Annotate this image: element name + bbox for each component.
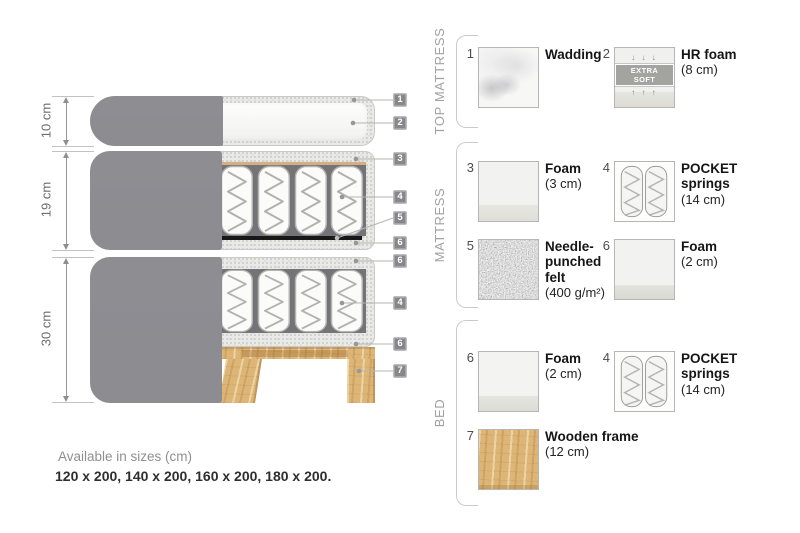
foam-swatch [478, 351, 539, 412]
item-number: 4 [592, 351, 610, 365]
compress-up-arrows-icon: ↑ ↑ ↑ [615, 89, 674, 97]
felt-texture [479, 240, 538, 299]
layer-tag-1: 1 [393, 93, 407, 107]
legend-section-title-mattress: MATTRESS [432, 160, 450, 290]
pocket-springs-icon [615, 352, 674, 411]
legend-item-bed-foam: 6 Foam (2 cm) [456, 351, 582, 412]
layer-tag-6b: 6 [393, 254, 407, 268]
item-name: HR foam [681, 47, 737, 62]
layer-tag-6: 6 [393, 236, 407, 250]
item-number: 2 [592, 47, 610, 61]
layer-tag-5: 5 [393, 211, 407, 225]
sizes-note-values: 120 x 200, 140 x 200, 160 x 200, 180 x 2… [55, 468, 331, 484]
wadding-swatch [478, 47, 539, 108]
legend-section-title-bed: BED [432, 348, 450, 478]
compress-down-arrows-icon: ↓ ↓ ↓ [615, 54, 674, 62]
item-name: Foam [545, 161, 582, 176]
pocket-springs-swatch [614, 161, 675, 222]
legend-section-title-top-mattress: TOP MATTRESS [432, 16, 450, 146]
layer-tag-7: 7 [393, 364, 407, 378]
legend-item-bed-pocket-springs: 4 POCKET springs (14 cm) [592, 351, 757, 412]
sizes-note-title: Available in sizes (cm) [58, 449, 192, 464]
item-number: 6 [592, 239, 610, 253]
felt-swatch [478, 239, 539, 300]
hr-foam-swatch: ↓ ↓ ↓ EXTRA SOFT ↑ ↑ ↑ [614, 47, 675, 108]
item-name: Wooden frame [545, 429, 639, 444]
wood-swatch [478, 429, 539, 490]
item-detail: (12 cm) [545, 444, 639, 460]
item-name: Foam [681, 239, 718, 254]
layer-tag-3: 3 [393, 152, 407, 166]
item-number: 7 [456, 429, 474, 443]
item-number: 3 [456, 161, 474, 175]
item-number: 5 [456, 239, 474, 253]
item-detail: (8 cm) [681, 62, 737, 78]
legend-item-wooden-frame: 7 Wooden frame (12 cm) [456, 429, 639, 490]
legend-item-pocket-springs: 4 POCKET springs (14 cm) [592, 161, 757, 222]
item-number: 4 [592, 161, 610, 175]
pocket-springs-swatch [614, 351, 675, 412]
foam-swatch [614, 239, 675, 300]
mattress-construction-infographic: 10 cm 19 cm 30 cm [0, 0, 800, 533]
item-detail: (14 cm) [681, 192, 757, 208]
legend-item-foam-2cm: 6 Foam (2 cm) [592, 239, 718, 300]
foam-swatch [478, 161, 539, 222]
extra-soft-badge: EXTRA SOFT [615, 64, 674, 86]
item-detail: (2 cm) [681, 254, 718, 270]
layer-tag-6c: 6 [393, 337, 407, 351]
item-name: POCKET springs [681, 161, 757, 192]
layer-tag-4b: 4 [393, 296, 407, 310]
item-number: 1 [456, 47, 474, 61]
item-detail: (2 cm) [545, 366, 582, 382]
legend-item-wadding: 1 Wadding [456, 47, 602, 108]
item-detail: (3 cm) [545, 176, 582, 192]
legend-item-foam-3cm: 3 Foam (3 cm) [456, 161, 582, 222]
layer-tag-2: 2 [393, 116, 407, 130]
layer-tag-4: 4 [393, 190, 407, 204]
item-number: 6 [456, 351, 474, 365]
item-detail: (14 cm) [681, 382, 757, 398]
item-name: POCKET springs [681, 351, 757, 382]
item-name: Foam [545, 351, 582, 366]
legend-item-hr-foam: 2 ↓ ↓ ↓ EXTRA SOFT ↑ ↑ ↑ HR foam (8 cm) [592, 47, 737, 108]
pocket-springs-icon [615, 162, 674, 221]
